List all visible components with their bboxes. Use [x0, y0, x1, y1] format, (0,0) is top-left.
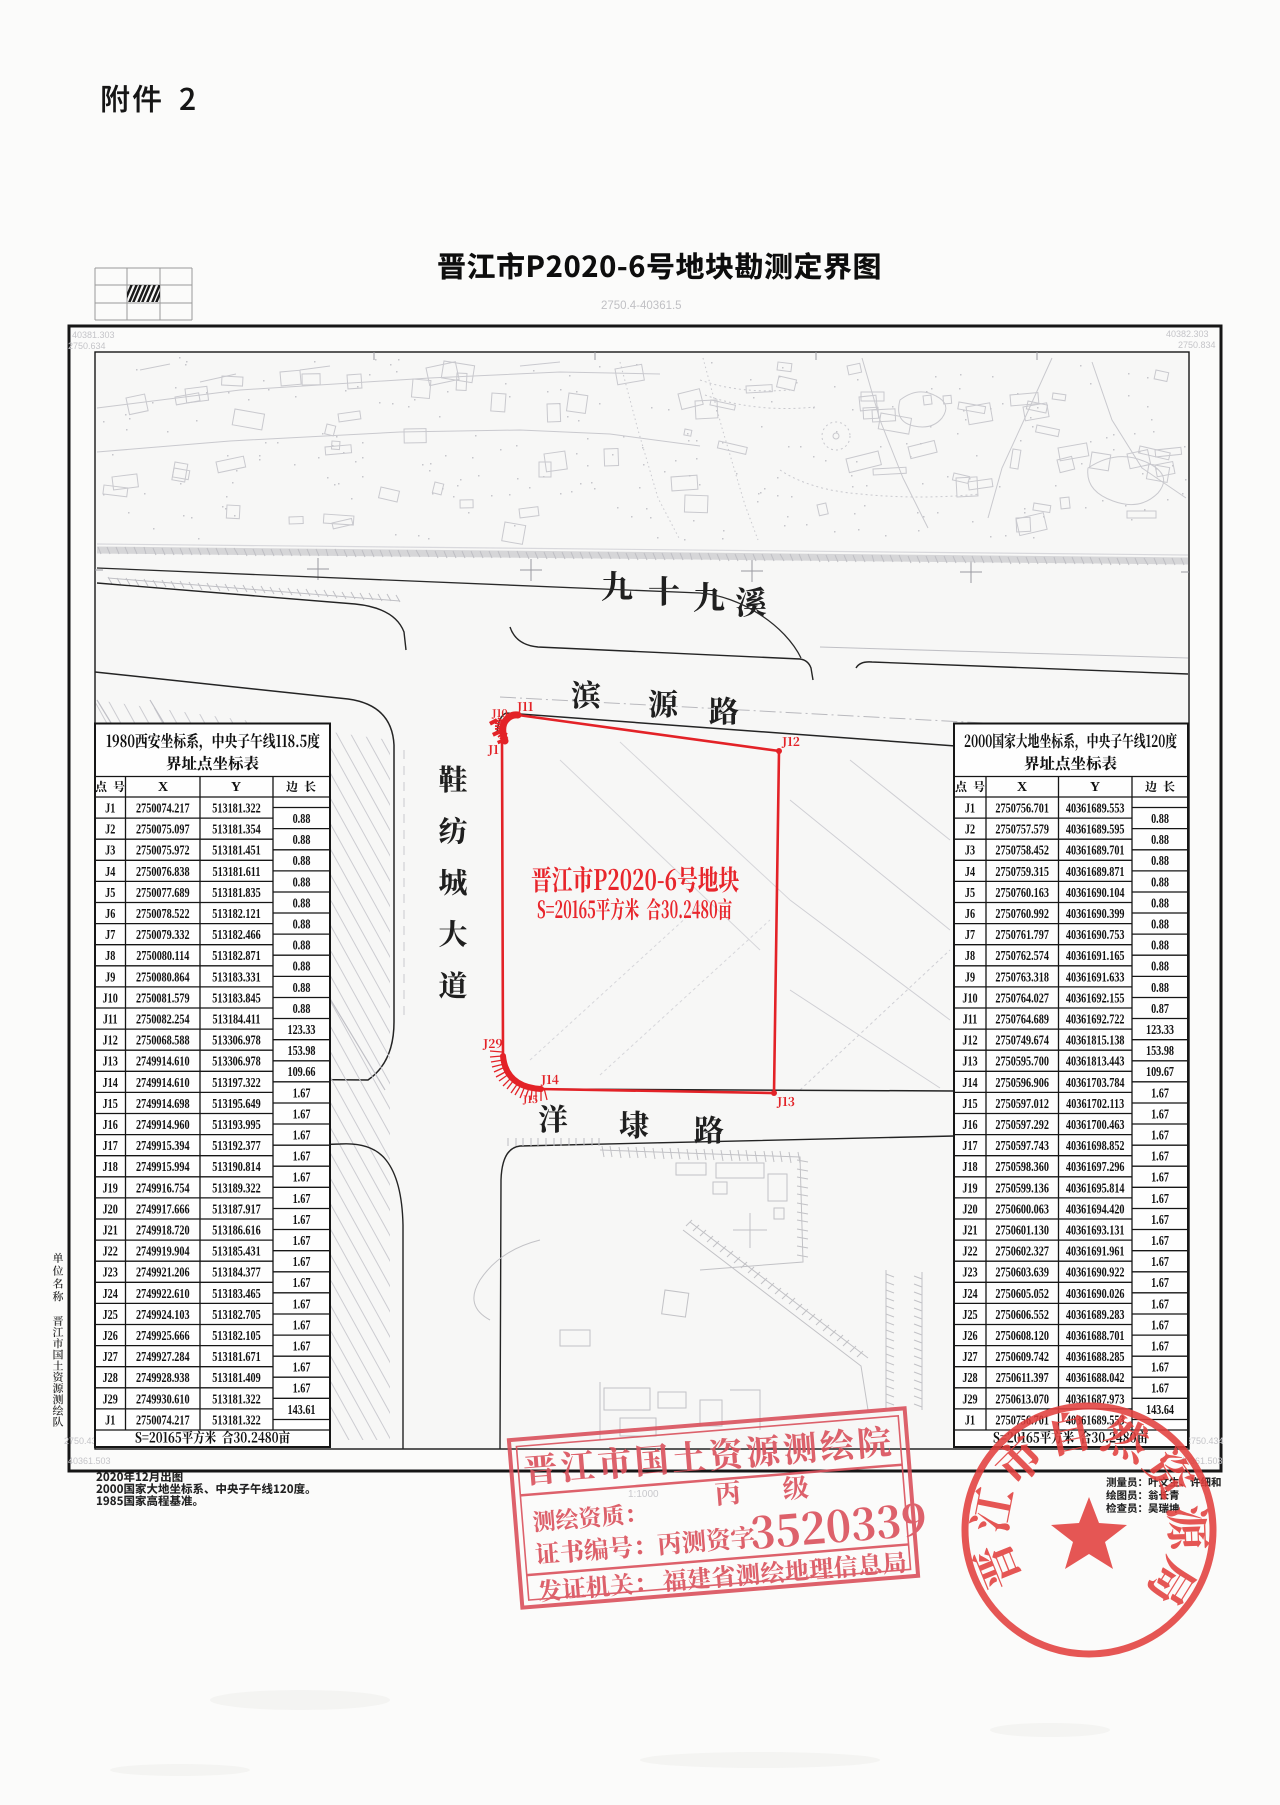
svg-text:2750762.574: 2750762.574 — [995, 948, 1049, 964]
svg-text:109.67: 109.67 — [1146, 1064, 1174, 1080]
svg-text:0.88: 0.88 — [1151, 916, 1169, 932]
svg-text:40361703.784: 40361703.784 — [1066, 1074, 1125, 1090]
svg-text:J23: J23 — [103, 1264, 118, 1280]
svg-text:2750606.552: 2750606.552 — [995, 1306, 1049, 1322]
svg-text:2750599.136: 2750599.136 — [995, 1180, 1049, 1196]
svg-text:J2: J2 — [965, 821, 975, 837]
svg-text:J28: J28 — [103, 1370, 118, 1386]
svg-text:40361689.701: 40361689.701 — [1066, 842, 1125, 858]
svg-text:2750597.012: 2750597.012 — [995, 1095, 1049, 1111]
svg-text:2750075.972: 2750075.972 — [136, 842, 190, 858]
svg-text:J8: J8 — [965, 948, 975, 964]
svg-text:1.67: 1.67 — [1151, 1085, 1169, 1101]
svg-text:2749915.394: 2749915.394 — [136, 1138, 190, 1154]
svg-text:40361815.138: 40361815.138 — [1066, 1032, 1125, 1048]
svg-text:J21: J21 — [962, 1222, 977, 1238]
svg-text:40361690.104: 40361690.104 — [1066, 884, 1125, 900]
svg-text:513182.105: 513182.105 — [212, 1327, 260, 1343]
svg-text:1.67: 1.67 — [293, 1106, 311, 1122]
svg-text:513182.121: 513182.121 — [212, 905, 260, 921]
svg-text:J11: J11 — [103, 1011, 118, 1027]
svg-text:513184.411: 513184.411 — [213, 1011, 261, 1027]
svg-text:513182.466: 513182.466 — [212, 927, 260, 943]
svg-text:2750761.797: 2750761.797 — [995, 927, 1049, 943]
svg-text:40361689.871: 40361689.871 — [1066, 863, 1125, 879]
svg-text:2749928.938: 2749928.938 — [136, 1370, 190, 1386]
svg-text:2750601.130: 2750601.130 — [995, 1222, 1049, 1238]
svg-text:513185.431: 513185.431 — [212, 1243, 260, 1259]
svg-text:2750597.743: 2750597.743 — [995, 1138, 1049, 1154]
svg-text:40361.503: 40361.503 — [68, 1456, 111, 1466]
svg-text:40361688.285: 40361688.285 — [1066, 1349, 1125, 1365]
svg-text:1.67: 1.67 — [1151, 1232, 1169, 1248]
svg-text:513182.705: 513182.705 — [212, 1306, 260, 1322]
svg-text:2749914.610: 2749914.610 — [136, 1074, 190, 1090]
svg-text:2749917.666: 2749917.666 — [136, 1201, 190, 1217]
svg-text:40361691.165: 40361691.165 — [1066, 948, 1125, 964]
svg-text:J17: J17 — [962, 1138, 977, 1154]
svg-text:2750075.097: 2750075.097 — [136, 821, 190, 837]
svg-text:109.66: 109.66 — [287, 1064, 315, 1080]
svg-text:J16: J16 — [103, 1116, 118, 1132]
svg-text:J8: J8 — [105, 948, 115, 964]
svg-text:Y: Y — [1090, 780, 1100, 795]
svg-text:0.88: 0.88 — [1151, 979, 1169, 995]
svg-text:1.67: 1.67 — [293, 1190, 311, 1206]
svg-text:2750.634: 2750.634 — [68, 341, 106, 351]
svg-text:40361698.852: 40361698.852 — [1066, 1138, 1125, 1154]
svg-text:153.98: 153.98 — [287, 1043, 315, 1059]
svg-text:2749918.720: 2749918.720 — [136, 1222, 190, 1238]
svg-text:2750076.838: 2750076.838 — [136, 863, 190, 879]
svg-text:123.33: 123.33 — [1146, 1021, 1174, 1037]
svg-text:40361689.553: 40361689.553 — [1066, 800, 1125, 816]
svg-text:513181.451: 513181.451 — [212, 842, 260, 858]
svg-text:513187.917: 513187.917 — [212, 1201, 260, 1217]
svg-text:2750.434: 2750.434 — [1186, 1436, 1224, 1446]
svg-text:143.64: 143.64 — [1146, 1401, 1174, 1417]
svg-text:0.88: 0.88 — [293, 810, 311, 826]
svg-text:J7: J7 — [965, 927, 975, 943]
svg-text:2750596.906: 2750596.906 — [995, 1074, 1049, 1090]
svg-text:2750082.254: 2750082.254 — [136, 1011, 190, 1027]
svg-text:0.88: 0.88 — [293, 895, 311, 911]
svg-text:513195.649: 513195.649 — [212, 1095, 260, 1111]
svg-text:513181.409: 513181.409 — [212, 1370, 260, 1386]
svg-text:513181.322: 513181.322 — [212, 1412, 260, 1428]
svg-text:513181.611: 513181.611 — [213, 863, 261, 879]
svg-text:40361690.753: 40361690.753 — [1066, 927, 1125, 943]
svg-text:J7: J7 — [105, 927, 115, 943]
svg-text:40361694.420: 40361694.420 — [1066, 1201, 1125, 1217]
svg-text:2750763.318: 2750763.318 — [995, 969, 1049, 985]
svg-text:40361695.814: 40361695.814 — [1066, 1180, 1125, 1196]
svg-text:0.88: 0.88 — [1151, 937, 1169, 953]
svg-text:2750756.701: 2750756.701 — [995, 800, 1049, 816]
svg-text:2750080.114: 2750080.114 — [136, 948, 189, 964]
svg-text:40361688.042: 40361688.042 — [1066, 1370, 1125, 1386]
svg-text:513181.322: 513181.322 — [212, 1391, 260, 1407]
svg-text:X: X — [1017, 780, 1027, 795]
svg-text:0.88: 0.88 — [293, 874, 311, 890]
svg-text:0.88: 0.88 — [293, 853, 311, 869]
svg-text:513183.331: 513183.331 — [212, 969, 260, 985]
svg-text:2750611.397: 2750611.397 — [996, 1370, 1049, 1386]
svg-text:2750613.070: 2750613.070 — [995, 1391, 1049, 1407]
svg-text:40361690.922: 40361690.922 — [1066, 1264, 1125, 1280]
svg-text:2750077.689: 2750077.689 — [136, 884, 190, 900]
svg-text:J9: J9 — [105, 969, 115, 985]
svg-text:2750081.579: 2750081.579 — [136, 990, 190, 1006]
svg-text:2750608.120: 2750608.120 — [995, 1327, 1049, 1343]
svg-text:J20: J20 — [962, 1201, 977, 1217]
svg-text:513184.377: 513184.377 — [212, 1264, 260, 1280]
svg-text:2749915.994: 2749915.994 — [136, 1159, 190, 1175]
svg-text:J11: J11 — [963, 1011, 978, 1027]
svg-text:1.67: 1.67 — [1151, 1275, 1169, 1291]
svg-text:40361813.443: 40361813.443 — [1066, 1053, 1125, 1069]
svg-text:513306.978: 513306.978 — [212, 1032, 260, 1048]
svg-text:40361692.722: 40361692.722 — [1066, 1011, 1125, 1027]
svg-text:2750.4-40361.5: 2750.4-40361.5 — [601, 300, 682, 312]
svg-text:2750609.742: 2750609.742 — [995, 1349, 1049, 1365]
svg-text:J26: J26 — [962, 1327, 977, 1343]
svg-text:J28: J28 — [962, 1370, 977, 1386]
svg-text:2750600.063: 2750600.063 — [995, 1201, 1049, 1217]
svg-text:J29: J29 — [962, 1391, 977, 1407]
svg-text:40361691.633: 40361691.633 — [1066, 969, 1125, 985]
svg-text:J18: J18 — [103, 1159, 118, 1175]
svg-text:0.88: 0.88 — [1151, 832, 1169, 848]
svg-text:J10: J10 — [103, 990, 118, 1006]
svg-text:J5: J5 — [965, 884, 975, 900]
svg-text:J14: J14 — [103, 1074, 118, 1090]
svg-text:J19: J19 — [962, 1180, 977, 1196]
svg-text:40361700.463: 40361700.463 — [1066, 1116, 1125, 1132]
svg-text:2750764.689: 2750764.689 — [995, 1011, 1049, 1027]
svg-text:40361690.026: 40361690.026 — [1066, 1285, 1125, 1301]
svg-text:513197.322: 513197.322 — [212, 1074, 260, 1090]
svg-text:1.67: 1.67 — [293, 1148, 311, 1164]
svg-text:1.67: 1.67 — [293, 1127, 311, 1143]
svg-text:143.61: 143.61 — [287, 1401, 315, 1417]
svg-text:1.67: 1.67 — [293, 1275, 311, 1291]
svg-text:J24: J24 — [103, 1285, 118, 1301]
svg-text:40361689.283: 40361689.283 — [1066, 1306, 1125, 1322]
svg-text:J3: J3 — [105, 842, 115, 858]
svg-text:2750597.292: 2750597.292 — [995, 1116, 1049, 1132]
svg-text:J14: J14 — [962, 1074, 977, 1090]
svg-text:J1: J1 — [105, 800, 115, 816]
svg-text:0.88: 0.88 — [293, 1000, 311, 1016]
svg-text:1.67: 1.67 — [1151, 1338, 1169, 1354]
svg-text:0.88: 0.88 — [1151, 853, 1169, 869]
svg-text:1.67: 1.67 — [1151, 1127, 1169, 1143]
svg-text:J9: J9 — [965, 969, 975, 985]
svg-text:513183.465: 513183.465 — [212, 1285, 260, 1301]
svg-text:1.67: 1.67 — [1151, 1317, 1169, 1333]
svg-text:1.67: 1.67 — [1151, 1169, 1169, 1185]
svg-text:2750603.639: 2750603.639 — [995, 1264, 1049, 1280]
svg-text:0.88: 0.88 — [1151, 958, 1169, 974]
svg-text:2750605.052: 2750605.052 — [995, 1285, 1049, 1301]
svg-text:2750757.579: 2750757.579 — [995, 821, 1049, 837]
svg-text:J22: J22 — [962, 1243, 977, 1259]
svg-text:123.33: 123.33 — [287, 1021, 315, 1037]
svg-text:1.67: 1.67 — [1151, 1296, 1169, 1312]
svg-text:1.67: 1.67 — [293, 1296, 311, 1312]
svg-text:J24: J24 — [962, 1285, 977, 1301]
svg-text:1.67: 1.67 — [1151, 1359, 1169, 1375]
svg-text:40361702.113: 40361702.113 — [1066, 1095, 1124, 1111]
svg-text:2749919.904: 2749919.904 — [136, 1243, 190, 1259]
svg-text:J20: J20 — [103, 1201, 118, 1217]
svg-text:513181.322: 513181.322 — [212, 800, 260, 816]
svg-text:2750595.700: 2750595.700 — [995, 1053, 1049, 1069]
svg-text:0.88: 0.88 — [1151, 874, 1169, 890]
svg-text:J12: J12 — [103, 1032, 118, 1048]
svg-text:2750749.674: 2750749.674 — [995, 1032, 1049, 1048]
svg-text:40361692.155: 40361692.155 — [1066, 990, 1125, 1006]
svg-text:40361689.595: 40361689.595 — [1066, 821, 1125, 837]
svg-text:513182.871: 513182.871 — [212, 948, 260, 964]
svg-text:J4: J4 — [965, 863, 975, 879]
svg-text:J22: J22 — [103, 1243, 118, 1259]
svg-text:2749921.206: 2749921.206 — [136, 1264, 190, 1280]
svg-text:J13: J13 — [962, 1053, 977, 1069]
svg-text:1.67: 1.67 — [293, 1380, 311, 1396]
svg-text:J15: J15 — [962, 1095, 977, 1111]
svg-text:1.67: 1.67 — [293, 1317, 311, 1333]
svg-text:513193.995: 513193.995 — [212, 1116, 260, 1132]
svg-text:513190.814: 513190.814 — [212, 1159, 260, 1175]
svg-text:513181.354: 513181.354 — [212, 821, 260, 837]
svg-text:513183.845: 513183.845 — [212, 990, 260, 1006]
svg-text:2750068.588: 2750068.588 — [136, 1032, 190, 1048]
svg-text:2750758.452: 2750758.452 — [995, 842, 1049, 858]
svg-text:1.67: 1.67 — [1151, 1211, 1169, 1227]
svg-text:1:1000: 1:1000 — [628, 1489, 659, 1500]
svg-text:40361691.961: 40361691.961 — [1066, 1243, 1125, 1259]
svg-text:2750759.315: 2750759.315 — [995, 863, 1049, 879]
svg-text:40361690.399: 40361690.399 — [1066, 905, 1125, 921]
svg-text:2749925.666: 2749925.666 — [136, 1327, 190, 1343]
svg-text:J12: J12 — [962, 1032, 977, 1048]
svg-text:J23: J23 — [962, 1264, 977, 1280]
svg-text:2750079.332: 2750079.332 — [136, 927, 190, 943]
svg-text:Y: Y — [231, 780, 241, 795]
svg-text:0.88: 0.88 — [1151, 810, 1169, 826]
svg-text:0.87: 0.87 — [1151, 1000, 1169, 1016]
svg-text:513189.322: 513189.322 — [212, 1180, 260, 1196]
svg-text:J3: J3 — [965, 842, 975, 858]
svg-text:0.88: 0.88 — [293, 832, 311, 848]
svg-text:0.88: 0.88 — [293, 958, 311, 974]
svg-text:X: X — [158, 780, 168, 795]
svg-text:2749930.610: 2749930.610 — [136, 1391, 190, 1407]
svg-text:2750760.992: 2750760.992 — [995, 905, 1049, 921]
svg-text:J1: J1 — [965, 800, 975, 816]
svg-text:J16: J16 — [962, 1116, 977, 1132]
svg-text:513181.671: 513181.671 — [212, 1349, 260, 1365]
svg-text:0.88: 0.88 — [293, 916, 311, 932]
svg-text:2750602.327: 2750602.327 — [995, 1243, 1049, 1259]
svg-text:40361688.701: 40361688.701 — [1066, 1327, 1125, 1343]
svg-text:J19: J19 — [103, 1180, 118, 1196]
svg-text:1.67: 1.67 — [1151, 1380, 1169, 1396]
svg-text:2750074.217: 2750074.217 — [136, 800, 190, 816]
svg-text:J2: J2 — [105, 821, 115, 837]
svg-text:1.67: 1.67 — [293, 1254, 311, 1270]
svg-text:2750598.360: 2750598.360 — [995, 1159, 1049, 1175]
svg-text:J5: J5 — [105, 884, 115, 900]
svg-text:J29: J29 — [103, 1391, 118, 1407]
svg-text:J15: J15 — [103, 1095, 118, 1111]
svg-text:J1: J1 — [965, 1412, 975, 1428]
svg-text:J6: J6 — [965, 905, 975, 921]
svg-text:2749914.610: 2749914.610 — [136, 1053, 190, 1069]
svg-text:0.88: 0.88 — [293, 979, 311, 995]
svg-text:40382.303: 40382.303 — [1166, 329, 1209, 339]
svg-text:2750.834: 2750.834 — [1178, 340, 1216, 350]
svg-text:1.67: 1.67 — [293, 1338, 311, 1354]
svg-text:2750760.163: 2750760.163 — [995, 884, 1049, 900]
svg-text:J25: J25 — [962, 1306, 977, 1322]
svg-text:J1: J1 — [105, 1412, 115, 1428]
svg-text:40361697.296: 40361697.296 — [1066, 1159, 1125, 1175]
svg-text:1.67: 1.67 — [293, 1359, 311, 1375]
svg-text:40361693.131: 40361693.131 — [1066, 1222, 1125, 1238]
svg-text:2749914.698: 2749914.698 — [136, 1095, 190, 1111]
svg-text:2749916.754: 2749916.754 — [136, 1180, 190, 1196]
svg-text:J27: J27 — [103, 1349, 118, 1365]
svg-text:1.67: 1.67 — [293, 1085, 311, 1101]
svg-text:1.67: 1.67 — [1151, 1190, 1169, 1206]
svg-text:40381.303: 40381.303 — [72, 330, 115, 340]
svg-text:2750074.217: 2750074.217 — [136, 1412, 190, 1428]
svg-text:1.67: 1.67 — [293, 1232, 311, 1248]
svg-text:513186.616: 513186.616 — [212, 1222, 260, 1238]
svg-text:513306.978: 513306.978 — [212, 1053, 260, 1069]
svg-text:J4: J4 — [105, 863, 115, 879]
svg-text:513192.377: 513192.377 — [212, 1138, 260, 1154]
svg-text:1.67: 1.67 — [1151, 1254, 1169, 1270]
svg-text:2749914.960: 2749914.960 — [136, 1116, 190, 1132]
svg-text:2749927.284: 2749927.284 — [136, 1349, 190, 1365]
svg-text:2750764.027: 2750764.027 — [995, 990, 1049, 1006]
svg-text:1.67: 1.67 — [293, 1169, 311, 1185]
svg-text:J26: J26 — [103, 1327, 118, 1343]
svg-text:J18: J18 — [962, 1159, 977, 1175]
svg-text:0.88: 0.88 — [293, 937, 311, 953]
svg-text:1.67: 1.67 — [293, 1211, 311, 1227]
svg-text:2749922.610: 2749922.610 — [136, 1285, 190, 1301]
svg-text:J17: J17 — [103, 1138, 118, 1154]
svg-text:1.67: 1.67 — [1151, 1106, 1169, 1122]
svg-text:2749924.103: 2749924.103 — [136, 1306, 190, 1322]
svg-text:2750078.522: 2750078.522 — [136, 905, 190, 921]
svg-text:J10: J10 — [962, 990, 977, 1006]
svg-text:513181.835: 513181.835 — [212, 884, 260, 900]
svg-text:J21: J21 — [103, 1222, 118, 1238]
svg-text:J27: J27 — [962, 1349, 977, 1365]
svg-text:153.98: 153.98 — [1146, 1043, 1174, 1059]
svg-text:J13: J13 — [103, 1053, 118, 1069]
svg-text:0.88: 0.88 — [1151, 895, 1169, 911]
svg-text:J25: J25 — [103, 1306, 118, 1322]
svg-text:J6: J6 — [105, 905, 115, 921]
svg-text:1.67: 1.67 — [1151, 1148, 1169, 1164]
svg-text:2750080.864: 2750080.864 — [136, 969, 190, 985]
